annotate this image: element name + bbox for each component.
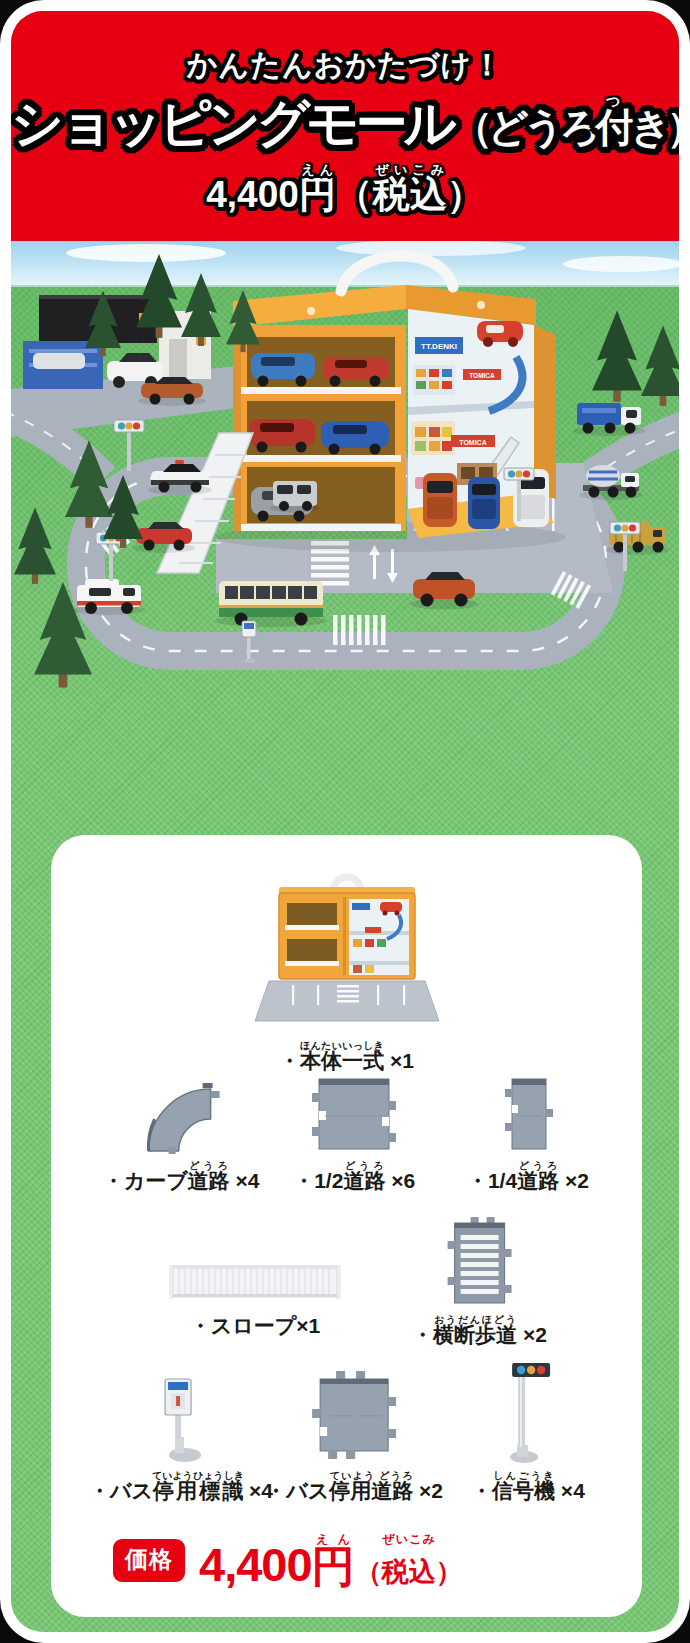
part-half-road: ・1/2道路どうろ ×6 [293,1071,415,1192]
part-label-quarter-road: ・1/4道路どうろ ×2 [467,1161,589,1192]
half-road-image [311,1071,397,1155]
part-bus-stop-sign: ・バス停用標識ていようひょうしき ×4 [89,1353,273,1502]
parts-list-card: ・本体一式ほんたいいっしき ×1 ・カーブ道路どうろ ×4 [51,835,642,1617]
header-tagline: かんたんおかたづけ！ [11,45,679,86]
part-quarter-road: ・1/4道路どうろ ×2 [467,1071,589,1192]
part-label-main-set: ・本体一式ほんたいいっしき ×1 [279,1041,414,1072]
part-label-traffic-signal: ・信号機しんごうき ×4 [471,1471,585,1502]
part-label-bus-stop-road: ・バス停用道路ていよう どうろ ×2 [265,1471,443,1502]
part-bus-stop-road: ・バス停用道路ていよう どうろ ×2 [265,1353,443,1502]
part-label-bus-stop-sign: ・バス停用標識ていようひょうしき ×4 [89,1471,273,1502]
main-set-image [247,869,447,1031]
furigana-yen: 円えん [299,174,336,215]
crosswalk-image [440,1215,518,1309]
furigana-tsuki: 付つ [596,105,631,149]
part-traffic-signal: ・信号機しんごうき ×4 [471,1353,585,1502]
promo-page: かんたんおかたづけ！ ショッピングモール（どうろ付つき） 4,400円えん（税込… [0,0,690,1643]
curve-road-image [139,1073,223,1155]
price-row: 価格 4,400円えん（税込ぜいこみ） [113,1533,463,1588]
part-label-curve-road: ・カーブ道路どうろ ×4 [103,1161,260,1192]
traffic-signal-image [500,1359,556,1465]
cloud [563,256,679,272]
store-sign-text: TT.DENKI [421,342,457,351]
kei-van [270,481,320,513]
header-price: 4,400円えん（税込ぜいこみ） [11,163,679,213]
parked-sedan-blue [468,477,500,529]
footer-price-tax: （税込ぜいこみ） [355,1557,463,1587]
price-badge: 価格 [113,1539,185,1582]
part-curve-road: ・カーブ道路どうろ ×4 [103,1071,260,1192]
tomica-sign-text: TOMICA [469,372,495,379]
case-shelves [241,337,401,531]
product-title-main: ショッピングモール [11,94,453,152]
product-title-paren: （どうろ付つき） [453,105,679,149]
footer-price: 4,400円えん（税込ぜいこみ） [199,1533,463,1588]
part-label-crosswalk: ・横断歩道おうだんほどう ×2 [412,1315,547,1346]
product-title: ショッピングモール（どうろ付つき） [11,94,679,149]
parked-suv-orange [423,473,457,527]
furigana-zeikomi: 税込ぜいこみ [373,174,447,215]
city-bus [215,581,327,627]
cloud [66,244,226,262]
footer-furigana-zeikomi: 税込ぜいこみ [382,1557,436,1587]
footer-price-amount: 4,400 [199,1538,312,1591]
bus-stop-sign-image [151,1375,211,1465]
quarter-road-image [500,1071,556,1155]
bus-stop-road-image [308,1369,400,1465]
part-label-slope: ・スロープ×1 [190,1315,320,1337]
part-crosswalk: ・横断歩道おうだんほどう ×2 [412,1215,547,1346]
slope-image [167,1251,343,1309]
garbage-truck [573,403,645,436]
part-slope: ・スロープ×1 [167,1215,343,1337]
tomica-sign-text-2: TOMICA [459,439,486,446]
header-banner: かんたんおかたづけ！ ショッピングモール（どうろ付つき） 4,400円えん（税込… [11,11,679,241]
footer-furigana-yen: 円えん [312,1542,355,1590]
product-photo: TT.DENKI TOMICA TOMICA [11,241,679,701]
part-label-half-road: ・1/2道路どうろ ×6 [293,1161,415,1192]
page-frame: かんたんおかたづけ！ ショッピングモール（どうろ付つき） 4,400円えん（税込… [11,11,679,1632]
header-price-amount: 4,400 [206,174,299,215]
